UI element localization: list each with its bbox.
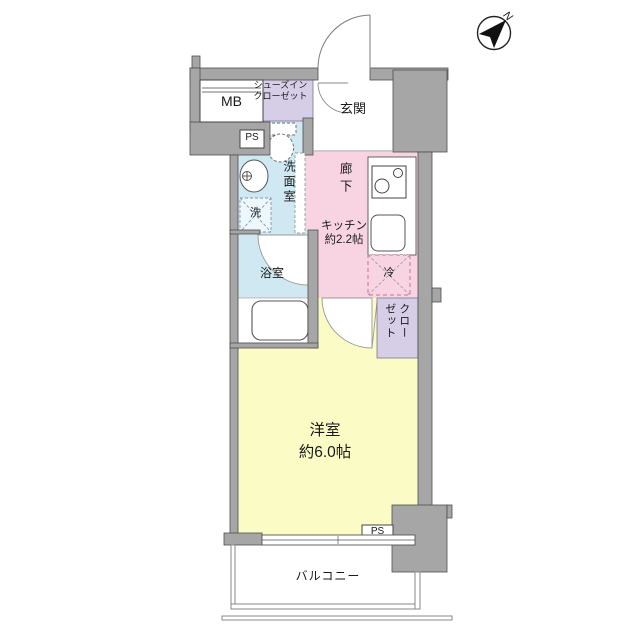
wall-bath-right [308,230,318,348]
shoe-closet-label: シューズインクローゼット [245,80,316,102]
balcony-label: バルコニー [287,569,369,584]
entrance-label: 玄関 [330,101,376,117]
kitchen-sink-icon [371,215,405,251]
washroom-label: 洗面室 [281,160,296,205]
washroom-sliding-door [295,153,305,233]
balcony-rail-left [231,545,235,608]
stove-icon [372,166,406,198]
wall-genkan-left [303,118,313,155]
wall-bath-bottom [230,343,318,348]
wall-mb-left [190,68,200,130]
hallway-label: 廊下 [336,162,352,197]
floorplan-canvas [0,0,640,640]
closet-label-col2: ゼット [382,303,396,339]
wall-bottom-left [224,533,262,545]
wall-right [418,152,432,508]
closet-label-col1: クロー [396,303,410,339]
wall-block-top-right [393,70,447,152]
washing-machine-label: 洗 [240,207,271,221]
kitchen-label: キッチン約2.2帖 [312,219,376,247]
wall-bath-top [230,230,260,234]
balcony-rail-bottom [231,604,420,609]
wall-bottom-right-tab [447,505,452,518]
wall-top-left [190,68,318,80]
sink-icon [240,160,268,192]
floorplan-page: { "compass": { "north_label": "N" }, "la… [0,0,640,640]
balcony-rail-right [415,572,420,609]
balcony-outer-line [222,616,452,620]
western-room-label: 洋室約6.0帖 [262,420,388,464]
bathroom-label: 浴室 [247,266,297,281]
bathtub-icon [252,301,308,340]
refrigerator-label: 冷 [368,267,410,281]
pipe-space-bottom-label: PS [362,526,393,539]
wall-top-tab [192,56,200,68]
entry-door-arc [318,15,370,70]
wall-right-bump [432,288,441,302]
pipe-space-top-label: PS [240,132,264,145]
